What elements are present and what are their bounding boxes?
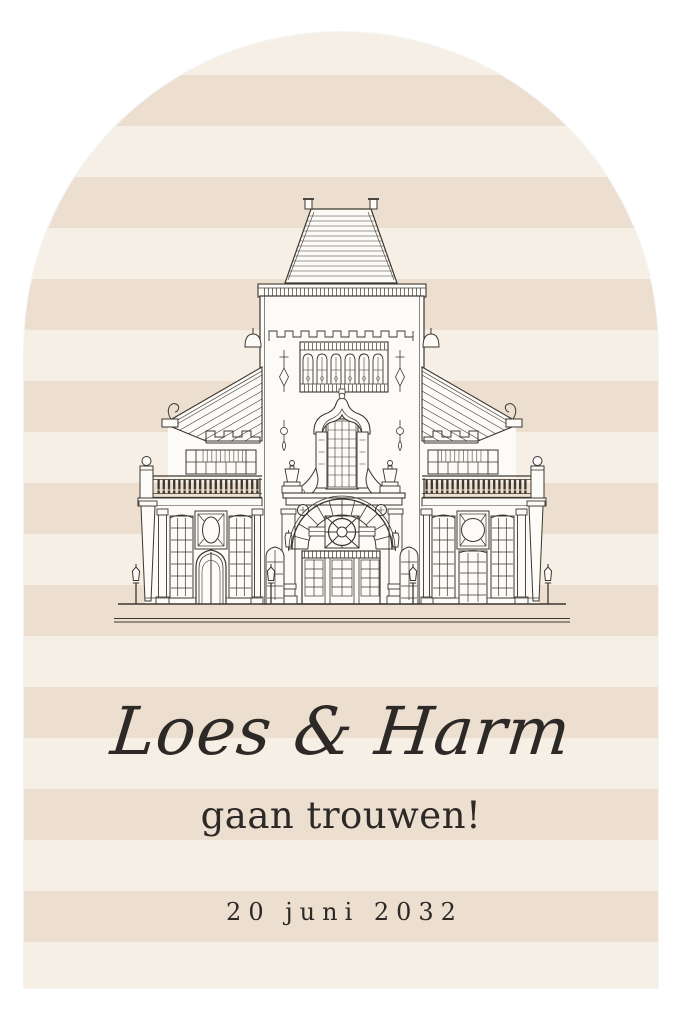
couple-names: Loes & Harm <box>24 696 658 769</box>
tower <box>245 199 439 604</box>
wedding-date: 20 juni 2032 <box>24 898 658 927</box>
building-line-art <box>114 199 570 622</box>
ground-lines <box>114 604 570 622</box>
page-background: { "invitation": { "names": "Loes & Harm"… <box>0 0 683 1024</box>
subtitle: gaan trouwen! <box>24 794 658 838</box>
venue-illustration <box>24 32 658 988</box>
invitation-card: Loes & Harm gaan trouwen! 20 juni 2032 <box>24 32 658 988</box>
